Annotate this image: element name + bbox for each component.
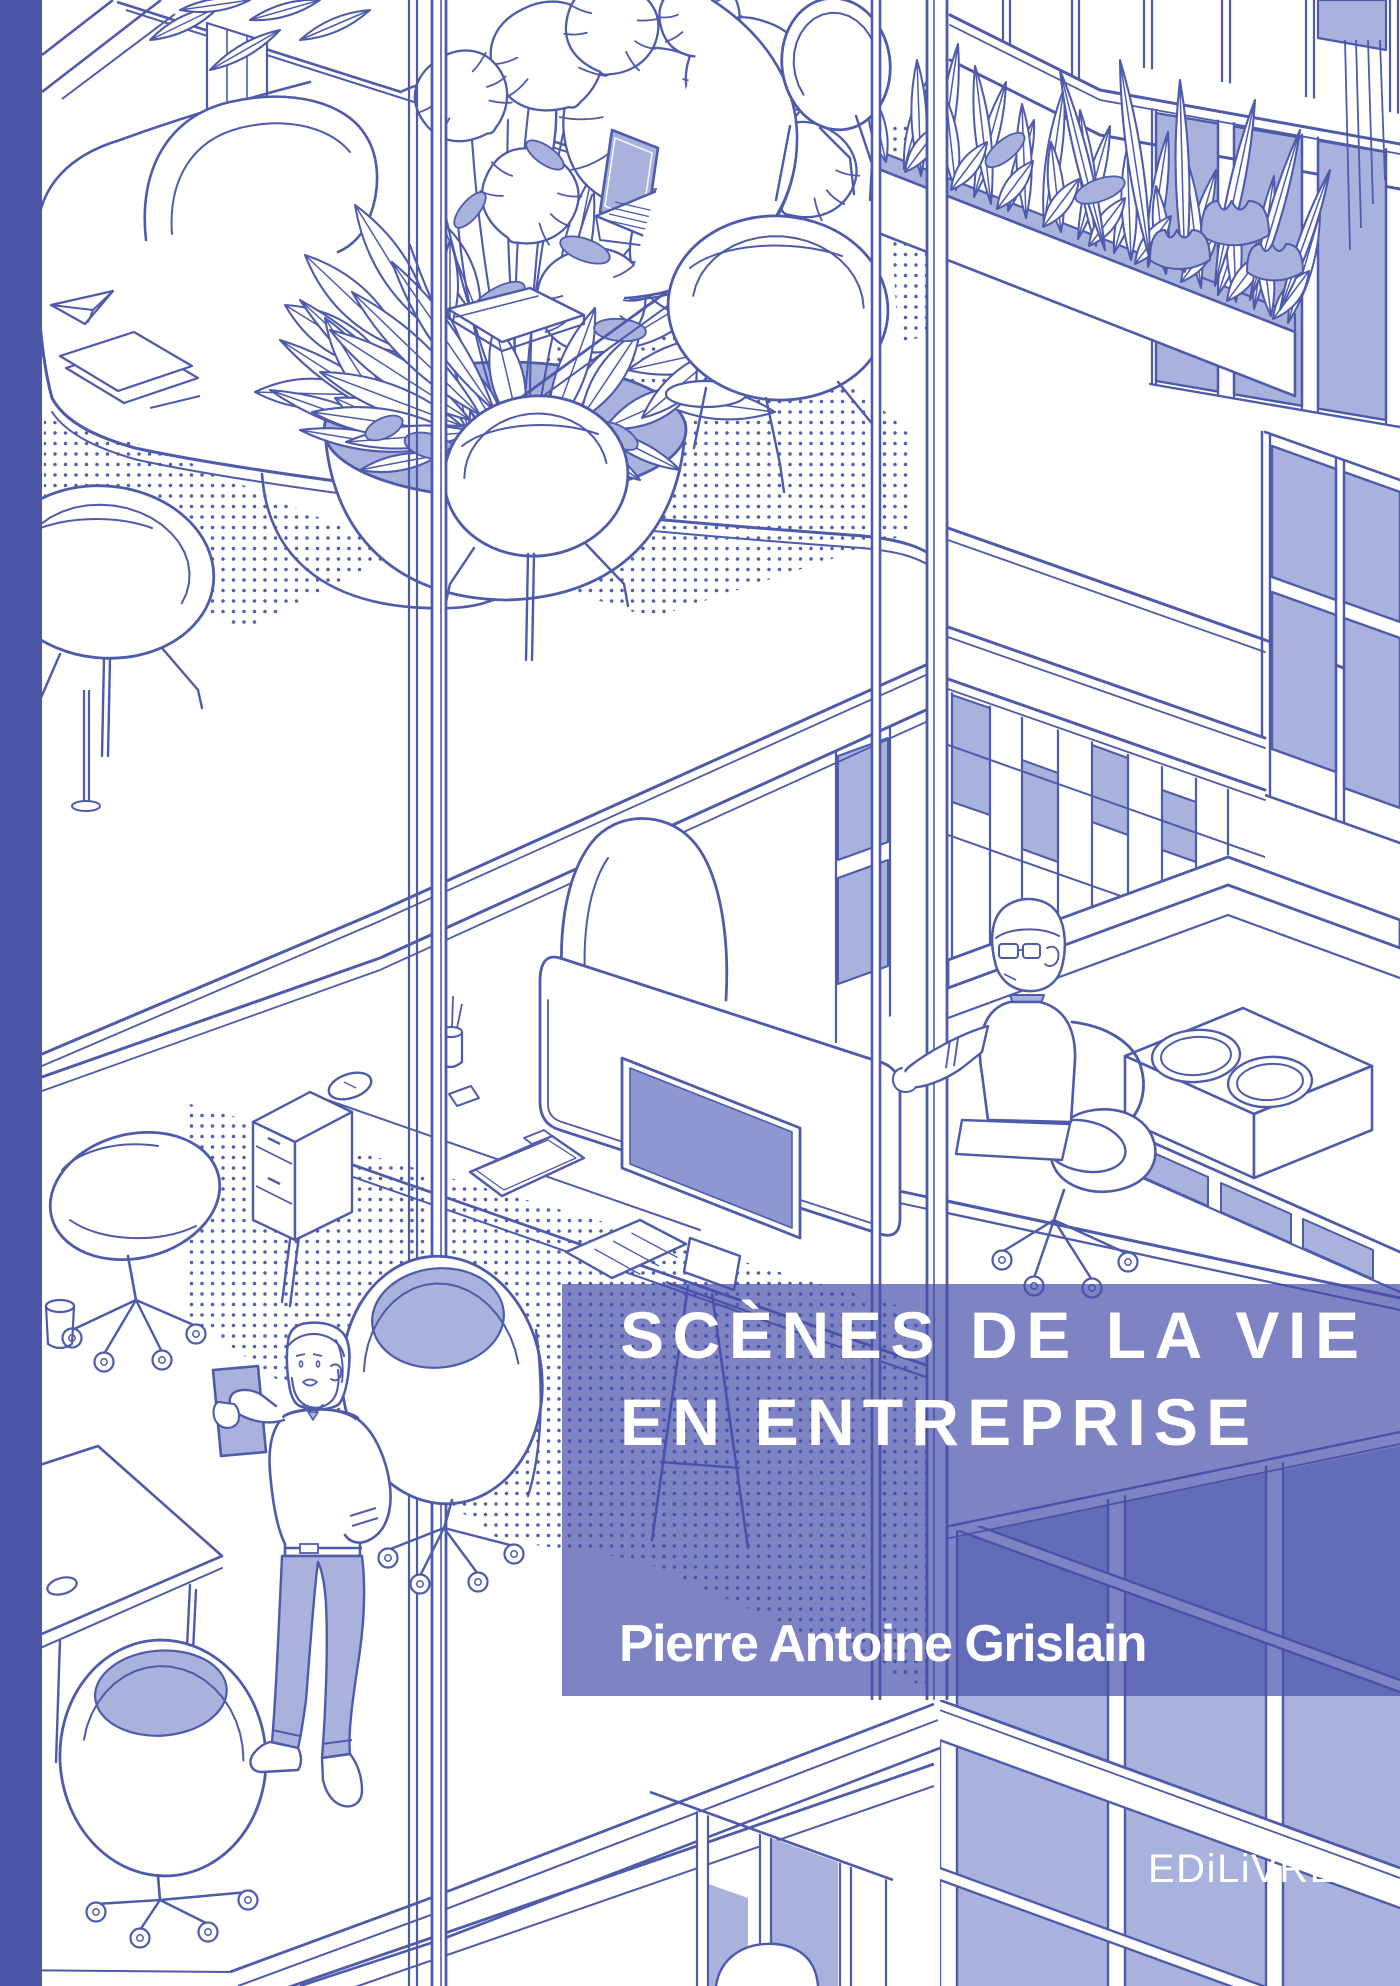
svg-text:Pierre Antoine Grislain: Pierre Antoine Grislain <box>619 1615 1146 1673</box>
svg-text:SCÈNES DE LA VIE: SCÈNES DE LA VIE <box>620 1298 1368 1372</box>
svg-text:EDiLiVRE: EDiLiVRE <box>1148 1847 1338 1891</box>
svg-text:EN ENTREPRISE: EN ENTREPRISE <box>620 1385 1258 1459</box>
